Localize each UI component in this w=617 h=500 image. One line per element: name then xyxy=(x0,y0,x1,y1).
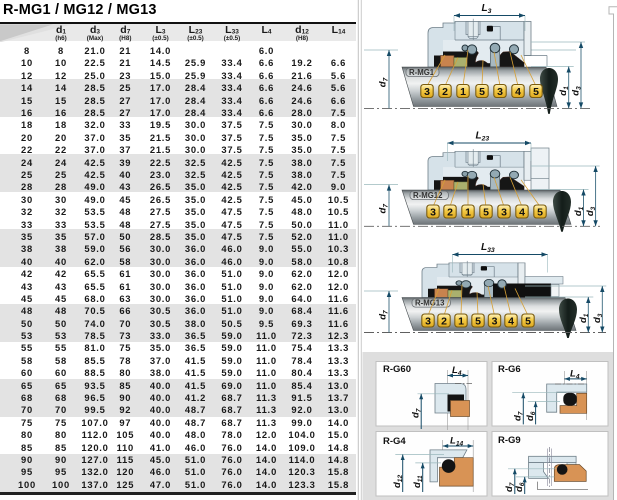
svg-text:3: 3 xyxy=(430,207,436,219)
svg-text:3: 3 xyxy=(501,207,507,219)
svg-text:5: 5 xyxy=(525,316,531,328)
svg-text:1: 1 xyxy=(465,207,471,219)
svg-text:5: 5 xyxy=(483,207,489,219)
svg-text:1: 1 xyxy=(458,316,464,328)
svg-text:R-G9: R-G9 xyxy=(498,435,521,446)
svg-text:d1: d1 xyxy=(558,86,570,96)
svg-text:2: 2 xyxy=(441,316,447,328)
svg-text:d7: d7 xyxy=(378,77,390,87)
svg-text:5: 5 xyxy=(475,316,481,328)
svg-text:4: 4 xyxy=(508,316,514,328)
svg-text:3: 3 xyxy=(492,316,498,328)
svg-text:d3: d3 xyxy=(585,206,597,216)
svg-text:R-G4: R-G4 xyxy=(383,436,406,447)
svg-text:2: 2 xyxy=(442,86,448,98)
svg-text:L3: L3 xyxy=(482,3,492,15)
svg-text:d7: d7 xyxy=(378,204,390,214)
svg-text:3: 3 xyxy=(425,316,431,328)
svg-text:L23: L23 xyxy=(476,131,490,143)
svg-text:d3: d3 xyxy=(592,313,604,323)
svg-text:d1: d1 xyxy=(573,206,585,216)
svg-text:R-MG13: R-MG13 xyxy=(415,299,445,308)
svg-text:5: 5 xyxy=(479,86,485,98)
svg-text:5: 5 xyxy=(533,86,539,98)
svg-text:5: 5 xyxy=(537,207,543,219)
svg-text:R-G6: R-G6 xyxy=(498,364,521,375)
svg-text:3: 3 xyxy=(497,86,503,98)
svg-text:R-MG12: R-MG12 xyxy=(413,191,443,200)
svg-text:4: 4 xyxy=(515,86,521,98)
svg-text:3: 3 xyxy=(424,86,430,98)
svg-text:4: 4 xyxy=(519,207,525,219)
svg-text:R-G60: R-G60 xyxy=(383,364,411,375)
svg-text:d7: d7 xyxy=(378,310,390,320)
svg-text:1: 1 xyxy=(460,86,466,98)
svg-text:R-MG1: R-MG1 xyxy=(409,68,435,77)
svg-text:L33: L33 xyxy=(481,242,495,254)
svg-text:d1: d1 xyxy=(578,313,590,323)
svg-text:2: 2 xyxy=(447,207,453,219)
svg-text:d3: d3 xyxy=(570,86,582,96)
